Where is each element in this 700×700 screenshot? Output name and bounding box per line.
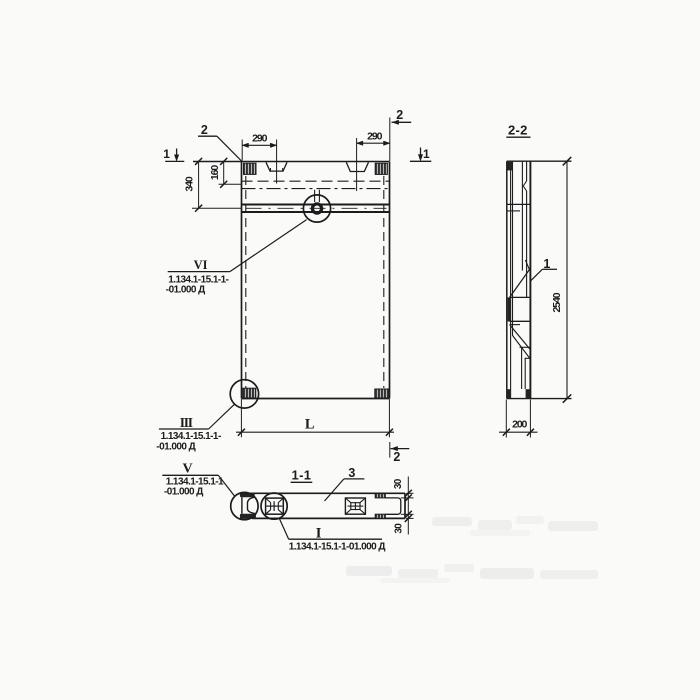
svg-text:30: 30 [393,478,404,489]
svg-text:-01.000 Д: -01.000 Д [164,487,203,498]
svg-text:1.134.1-15.1-1-01.000 Д: 1.134.1-15.1-1-01.000 Д [289,542,386,553]
svg-text:2-2: 2-2 [508,123,528,138]
svg-text:2: 2 [201,123,208,137]
svg-text:290: 290 [252,133,267,145]
svg-text:V: V [182,461,192,476]
svg-text:340: 340 [184,176,196,191]
svg-text:290: 290 [367,131,382,143]
svg-text:30: 30 [394,523,405,534]
svg-text:-01.000 Д: -01.000 Д [156,441,195,452]
svg-text:VI: VI [194,258,208,272]
svg-text:-01.000 Д: -01.000 Д [166,285,205,296]
svg-text:III: III [180,415,193,430]
svg-text:2: 2 [393,450,400,464]
svg-text:3: 3 [348,466,355,480]
svg-text:1-1: 1-1 [292,468,312,483]
svg-text:2540: 2540 [551,292,563,312]
svg-text:L: L [305,416,315,432]
svg-text:200: 200 [512,419,527,431]
svg-text:160: 160 [209,165,221,180]
svg-text:1: 1 [163,147,170,161]
svg-text:1: 1 [423,147,430,161]
svg-text:2: 2 [396,108,403,122]
